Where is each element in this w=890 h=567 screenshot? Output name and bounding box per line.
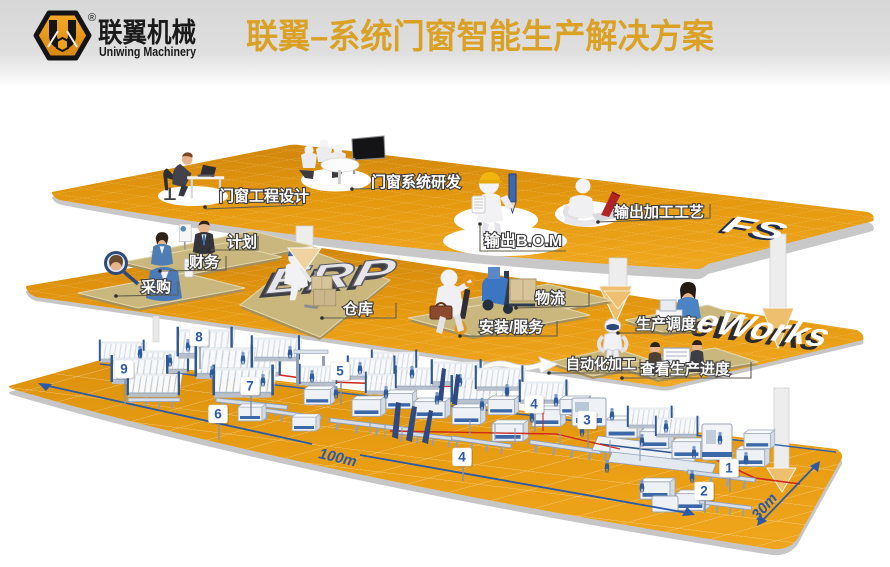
svg-text:输出B.O.M: 输出B.O.M xyxy=(484,231,562,250)
svg-text:®: ® xyxy=(88,12,96,24)
svg-text:3: 3 xyxy=(583,413,591,428)
svg-text:采购: 采购 xyxy=(140,278,171,296)
svg-text:生产调度: 生产调度 xyxy=(636,315,697,333)
svg-text:联翼–系统门窗智能生产解决方案: 联翼–系统门窗智能生产解决方案 xyxy=(246,18,715,56)
svg-text:财务: 财务 xyxy=(189,253,220,271)
svg-text:4: 4 xyxy=(458,450,466,465)
svg-text:门窗工程设计: 门窗工程设计 xyxy=(219,187,309,205)
svg-text:6: 6 xyxy=(214,407,222,422)
svg-text:查看生产进度: 查看生产进度 xyxy=(640,360,731,378)
svg-text:自动化加工: 自动化加工 xyxy=(566,356,636,372)
svg-text:仓库: 仓库 xyxy=(342,300,373,318)
svg-text:安装/服务: 安装/服务 xyxy=(479,318,544,336)
svg-text:输出加工工艺: 输出加工工艺 xyxy=(614,203,704,221)
svg-text:5: 5 xyxy=(336,364,344,379)
svg-text:Uniwing Machinery: Uniwing Machinery xyxy=(99,44,197,59)
svg-text:1: 1 xyxy=(725,461,733,476)
svg-text:门窗系统研发: 门窗系统研发 xyxy=(371,173,462,191)
svg-text:2: 2 xyxy=(700,484,708,499)
svg-text:计划: 计划 xyxy=(227,233,257,251)
svg-text:物流: 物流 xyxy=(535,289,565,307)
svg-text:9: 9 xyxy=(120,362,128,377)
svg-text:4: 4 xyxy=(530,397,538,412)
svg-text:8: 8 xyxy=(195,330,203,345)
svg-text:7: 7 xyxy=(246,379,254,394)
